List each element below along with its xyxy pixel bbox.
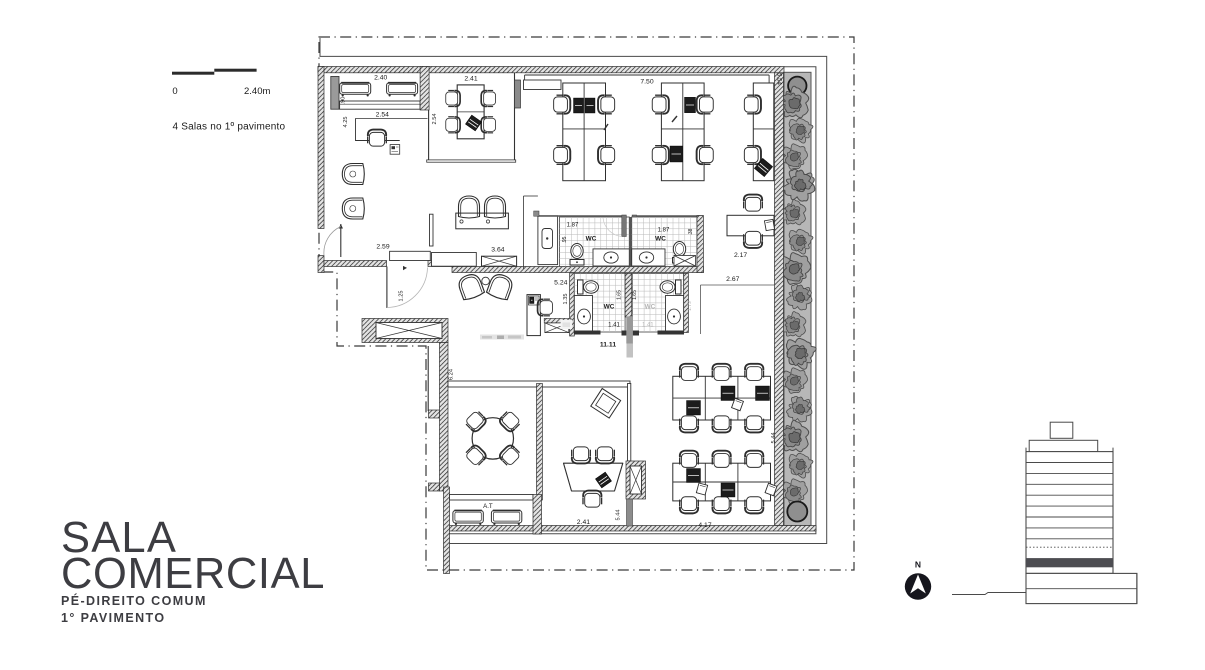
svg-text:1.35: 1.35 — [563, 294, 569, 305]
svg-text:2.17: 2.17 — [734, 252, 747, 259]
svg-text:.95: .95 — [562, 236, 568, 243]
svg-text:2.54: 2.54 — [376, 112, 389, 119]
svg-text:1.41: 1.41 — [608, 322, 620, 328]
svg-text:2.67: 2.67 — [726, 276, 739, 283]
svg-text:0: 0 — [172, 86, 177, 97]
svg-text:.38: .38 — [688, 228, 694, 235]
svg-text:11.11: 11.11 — [600, 342, 616, 349]
svg-text:A.T: A.T — [483, 503, 493, 510]
svg-text:COMERCIAL: COMERCIAL — [61, 550, 325, 598]
svg-text:5.24: 5.24 — [554, 280, 567, 287]
svg-text:6.24: 6.24 — [449, 369, 455, 380]
svg-text:1.25: 1.25 — [399, 291, 405, 302]
svg-text:5.44: 5.44 — [771, 433, 777, 444]
svg-text:2.59: 2.59 — [376, 244, 389, 251]
svg-text:4.25: 4.25 — [343, 117, 349, 128]
svg-text:7.50: 7.50 — [640, 79, 653, 86]
svg-text:WC: WC — [604, 304, 615, 311]
svg-text:2.54: 2.54 — [432, 114, 438, 125]
svg-text:5.54: 5.54 — [776, 73, 782, 85]
svg-text:2.40m: 2.40m — [244, 86, 270, 97]
svg-text:4 Salas no 1º pavimento: 4 Salas no 1º pavimento — [173, 122, 286, 133]
svg-text:PÉ-DIREITO COMUM: PÉ-DIREITO COMUM — [61, 593, 207, 608]
svg-text:1.87: 1.87 — [567, 223, 579, 229]
svg-text:2.41: 2.41 — [577, 519, 590, 526]
svg-text:5.44: 5.44 — [615, 510, 621, 521]
svg-text:1.79: 1.79 — [687, 301, 693, 311]
svg-text:4.17: 4.17 — [698, 522, 711, 529]
svg-text:N: N — [915, 560, 921, 570]
svg-text:1.65: 1.65 — [632, 290, 638, 300]
svg-text:WC: WC — [586, 236, 597, 243]
svg-text:1° PAVIMENTO: 1° PAVIMENTO — [61, 611, 165, 625]
svg-text:1.65: 1.65 — [616, 290, 622, 300]
svg-text:WC: WC — [645, 304, 656, 311]
svg-text:2.41: 2.41 — [464, 76, 477, 83]
svg-text:3.64: 3.64 — [491, 247, 504, 254]
svg-text:2.40: 2.40 — [374, 75, 387, 82]
svg-text:.90: .90 — [341, 97, 347, 105]
svg-text:1.41: 1.41 — [642, 322, 654, 328]
svg-text:1.87: 1.87 — [658, 228, 670, 234]
svg-text:WC: WC — [655, 236, 666, 243]
